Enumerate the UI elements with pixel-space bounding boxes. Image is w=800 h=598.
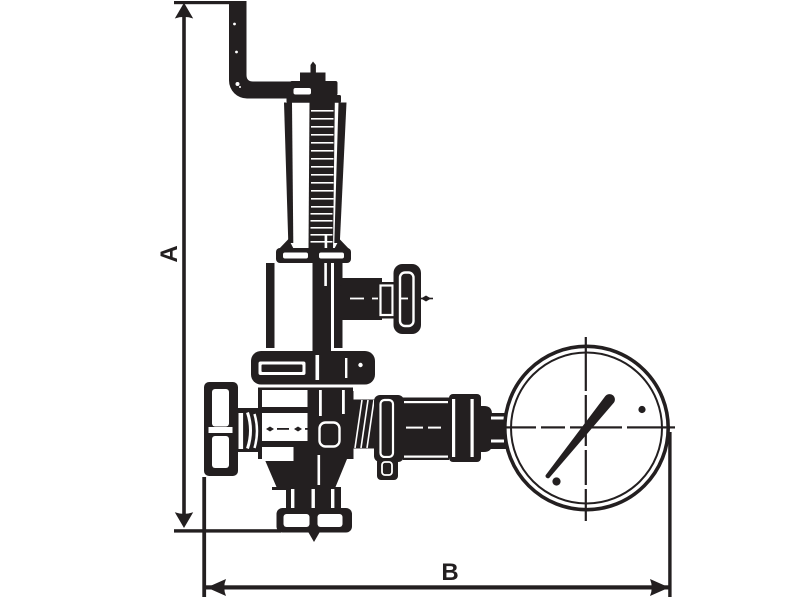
svg-text:A: A bbox=[156, 245, 183, 262]
svg-text:B: B bbox=[441, 559, 458, 586]
